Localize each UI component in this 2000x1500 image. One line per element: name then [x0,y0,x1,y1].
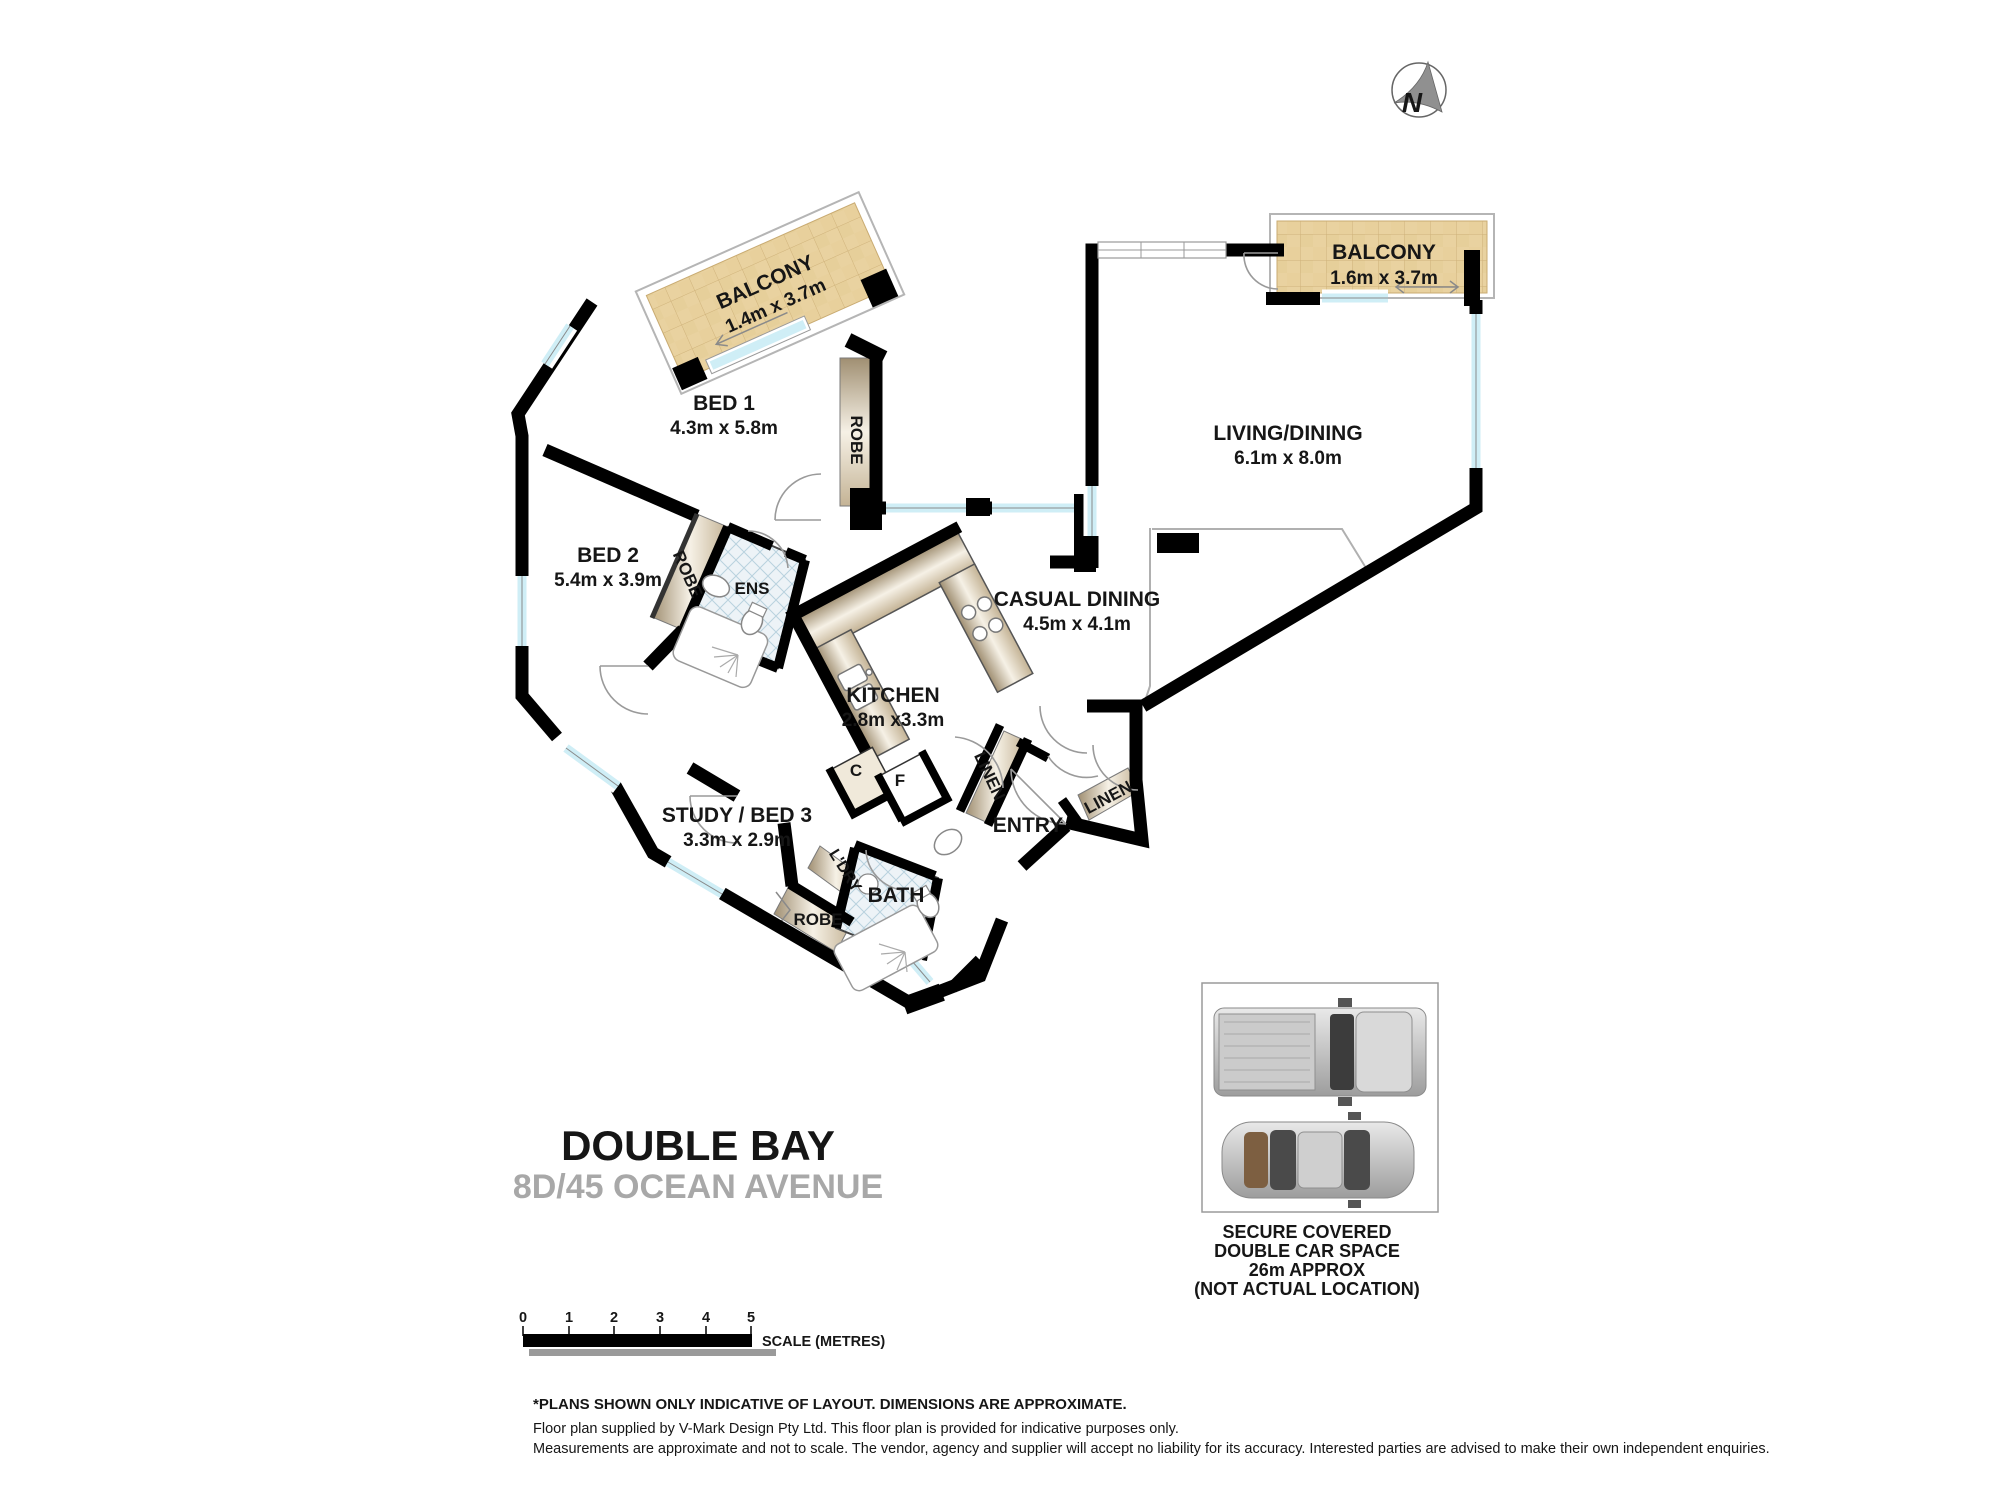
sedan-icon [1222,1112,1414,1208]
scale-bar-black [523,1334,752,1347]
car-caption-3: 26m APPROX [1249,1260,1365,1280]
car-caption-4: (NOT ACTUAL LOCATION) [1194,1279,1420,1299]
floor-plan-page: BALCONY 1.4m x 3.7m BALCONY 1.6m x 3.7m [0,0,2000,1500]
north-compass: N [1392,62,1446,118]
casual-dining-dims: 4.5m x 4.1m [1023,614,1131,635]
open-plan-lines [1144,528,1366,704]
scale-bar-shadow [529,1349,776,1356]
disclaimer-line-3: Measurements are approximate and not to … [533,1441,1770,1457]
bed2-label: BED 2 [577,544,639,567]
scale-tick-3: 3 [656,1310,664,1326]
balcony2-dims: 1.6m x 3.7m [1330,268,1438,289]
vanity-basin-icon [929,824,966,860]
cupboard-label: C [850,761,862,780]
scale-tick-4: 4 [702,1310,710,1326]
balcony-2-area: BALCONY 1.6m x 3.7m [1270,214,1494,298]
study-label: STUDY / BED 3 [662,804,812,827]
disclaimer-line-1: *PLANS SHOWN ONLY INDICATIVE OF LAYOUT. … [533,1396,1127,1413]
scale-tick-2: 2 [610,1310,618,1326]
casual-dining-label: CASUAL DINING [994,588,1160,611]
study-dims: 3.3m x 2.9m [683,830,791,851]
kitchen-dims: 2.8m x3.3m [842,710,944,731]
floor-plan: BALCONY 1.4m x 3.7m BALCONY 1.6m x 3.7m [518,192,1494,1014]
bed1-label: BED 1 [693,392,755,415]
scale-bar: 0 1 2 3 4 5 SCALE (METRES) [519,1310,885,1356]
balcony2-label: BALCONY [1332,241,1436,264]
suburb-title: DOUBLE BAY [561,1122,835,1169]
title-block: DOUBLE BAY 8D/45 OCEAN AVENUE [513,1122,883,1206]
living-dining-dims: 6.1m x 8.0m [1234,448,1342,469]
column [1157,533,1199,553]
living-top-window [1098,242,1226,258]
ens-label: ENS [735,579,770,598]
scale-label: SCALE (METRES) [762,1334,885,1350]
robe1-label: ROBE [847,415,866,464]
entry-label: ENTRY [993,814,1063,837]
scale-tick-5: 5 [747,1310,755,1326]
bed1-dims: 4.3m x 5.8m [670,418,778,439]
scale-tick-0: 0 [519,1310,527,1326]
address-subtitle: 8D/45 OCEAN AVENUE [513,1168,883,1206]
north-letter: N [1402,87,1423,118]
bed2-dims: 5.4m x 3.9m [554,570,662,591]
car-space-caption: SECURE COVERED DOUBLE CAR SPACE 26m APPR… [1194,1222,1420,1299]
car-caption-1: SECURE COVERED [1222,1222,1391,1242]
living-dining-label: LIVING/DINING [1213,422,1362,445]
disclaimer-line-2: Floor plan supplied by V-Mark Design Pty… [533,1421,1179,1437]
ute-icon [1214,998,1426,1106]
bath-label: BATH [868,884,925,907]
scale-tick-1: 1 [565,1310,573,1326]
kitchen-label: KITCHEN [846,684,939,707]
fridge-label: F [895,771,905,790]
car-caption-2: DOUBLE CAR SPACE [1214,1241,1400,1261]
fridge-box [876,751,947,823]
floor-plan-svg: BALCONY 1.4m x 3.7m BALCONY 1.6m x 3.7m [0,0,2000,1500]
robe3-label: ROBE [793,910,842,929]
disclaimer: *PLANS SHOWN ONLY INDICATIVE OF LAYOUT. … [533,1396,1770,1457]
car-space-figure: SECURE COVERED DOUBLE CAR SPACE 26m APPR… [1194,983,1438,1299]
